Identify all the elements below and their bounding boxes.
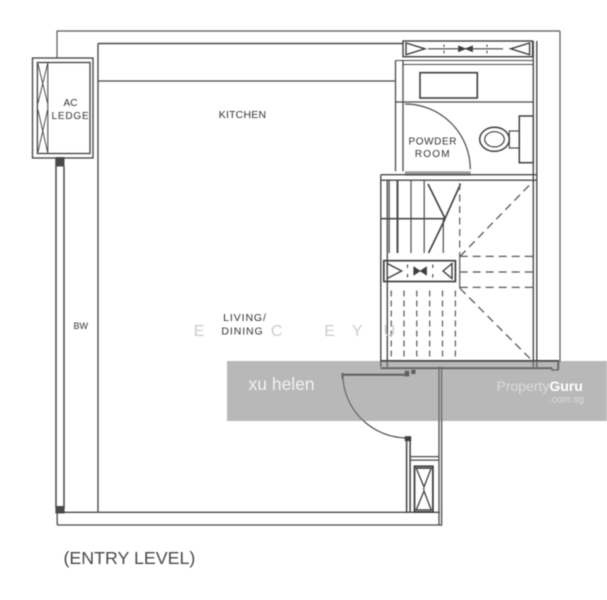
svg-text:.com.sg: .com.sg (549, 395, 584, 406)
svg-text:U: U (384, 323, 396, 340)
svg-text:KITCHEN: KITCHEN (219, 109, 267, 121)
svg-text:C: C (271, 323, 283, 340)
svg-text:BW: BW (74, 321, 89, 331)
svg-text:LIVING/: LIVING/ (223, 312, 267, 324)
svg-text:DINING: DINING (221, 326, 263, 338)
svg-text:xu helen: xu helen (249, 374, 315, 394)
svg-text:PropertyGuru: PropertyGuru (497, 378, 583, 394)
svg-text:ROOM: ROOM (415, 149, 451, 160)
svg-text:Y: Y (352, 323, 363, 340)
svg-text:(ENTRY LEVEL): (ENTRY LEVEL) (64, 548, 196, 568)
svg-text:E: E (324, 323, 335, 340)
svg-text:LEDGE: LEDGE (52, 111, 90, 122)
svg-text:E: E (194, 323, 205, 340)
svg-text:AC: AC (64, 98, 78, 109)
svg-text:POWDER: POWDER (408, 137, 457, 148)
